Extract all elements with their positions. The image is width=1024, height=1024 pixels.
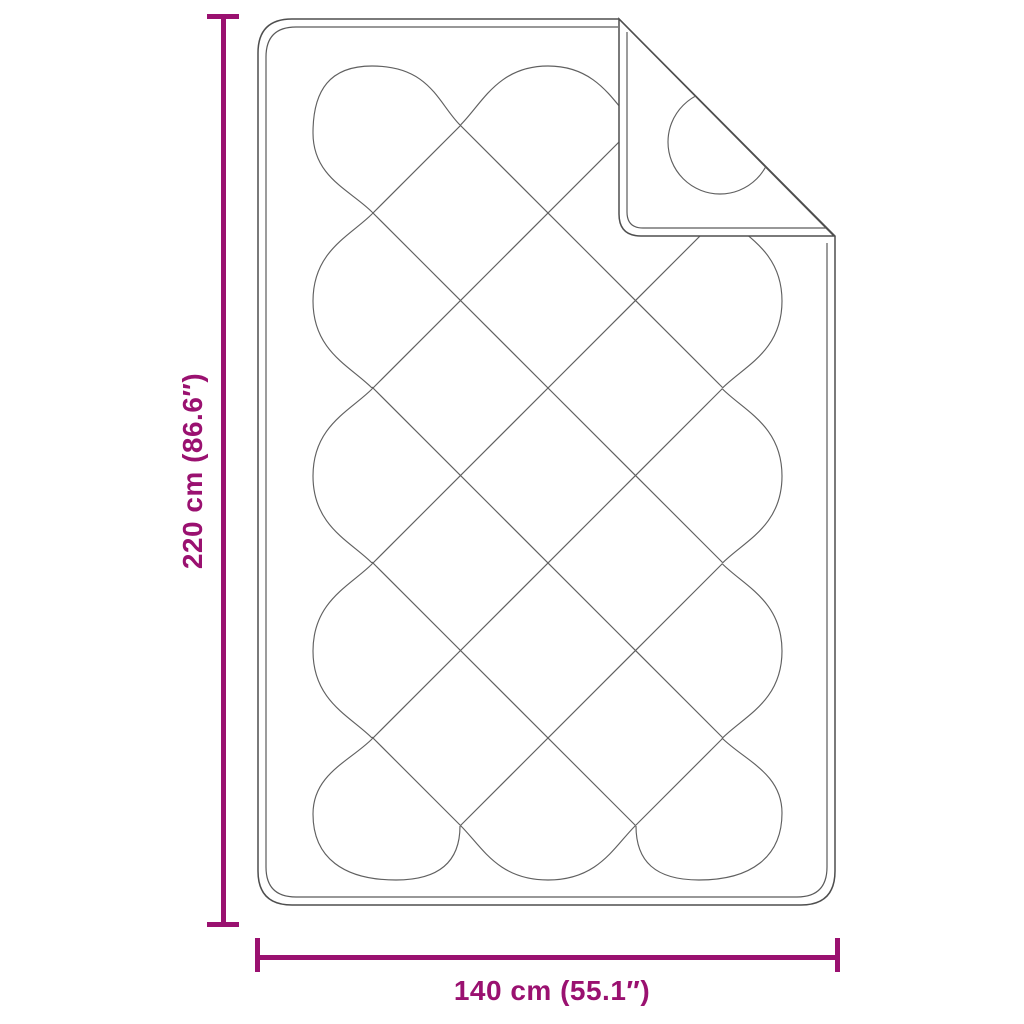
folded-corner-flap	[619, 19, 834, 236]
width-dimension-line	[258, 955, 838, 960]
height-dimension-tick-top	[207, 14, 239, 19]
blanket-drawing	[0, 0, 1024, 1024]
height-dimension-tick-bottom	[207, 922, 239, 927]
width-dimension-tick-right	[835, 938, 840, 972]
product-dimension-diagram: 220 cm (86.6″) 140 cm (55.1″)	[0, 0, 1024, 1024]
width-dimension-tick-left	[255, 938, 260, 972]
height-dimension-line	[221, 16, 226, 927]
folded-corner	[619, 19, 834, 236]
height-dimension-label: 220 cm (86.6″)	[171, 291, 215, 651]
width-dimension-label: 140 cm (55.1″)	[372, 971, 732, 1011]
